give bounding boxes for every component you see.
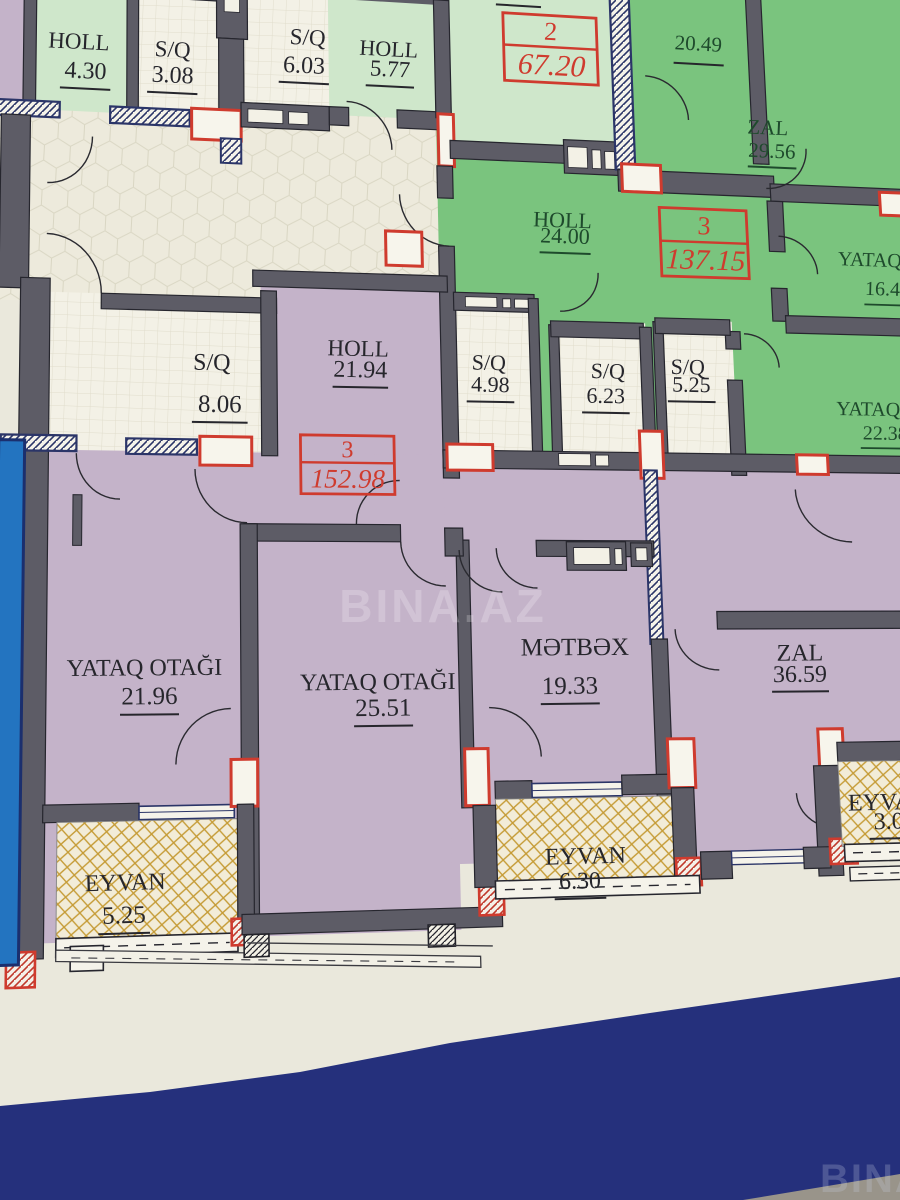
svg-text:BINA.AZ: BINA.AZ	[339, 580, 547, 632]
svg-text:BINA.AZ: BINA.AZ	[820, 1157, 900, 1200]
